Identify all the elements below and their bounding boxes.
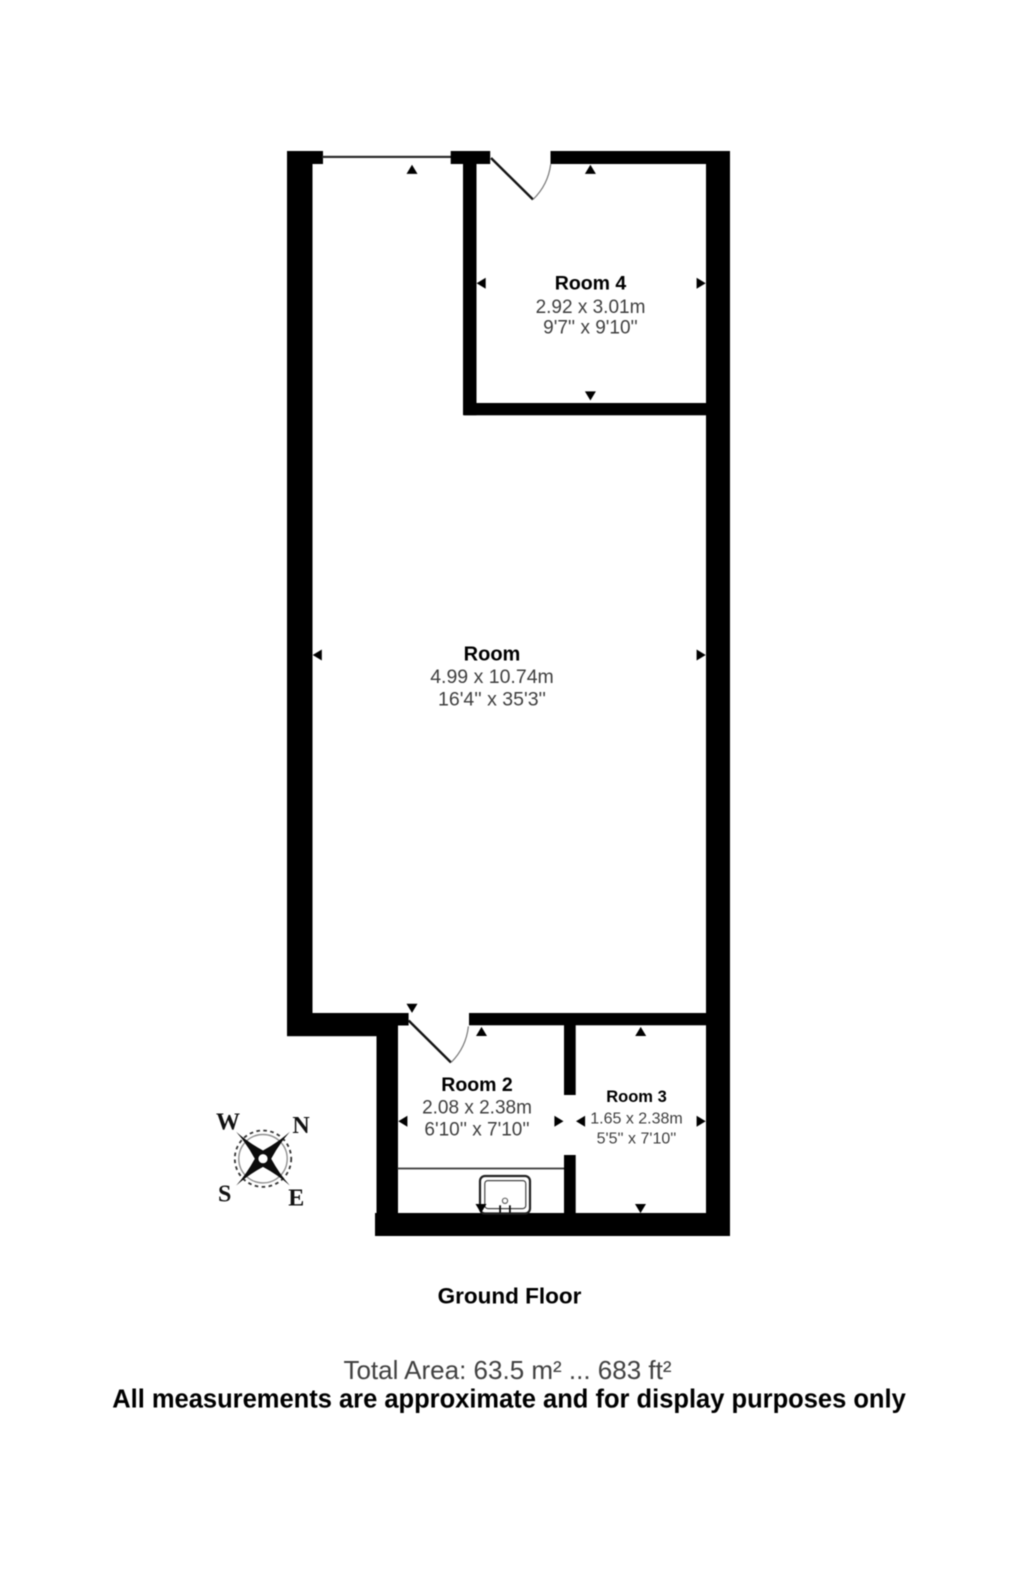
svg-text:Room 4: Room 4 (555, 273, 627, 295)
svg-text:Room: Room (464, 643, 521, 665)
svg-text:6'10'' x 7'10'': 6'10'' x 7'10'' (424, 1120, 529, 1141)
svg-text:E: E (288, 1185, 304, 1211)
svg-text:1.65 x 2.38m: 1.65 x 2.38m (590, 1111, 683, 1128)
svg-text:W: W (216, 1110, 240, 1136)
svg-text:Room 3: Room 3 (606, 1088, 667, 1106)
svg-text:S: S (218, 1181, 231, 1207)
svg-text:16'4'' x 35'3'': 16'4'' x 35'3'' (438, 688, 546, 710)
svg-text:N: N (292, 1113, 310, 1139)
svg-text:All measurements are approxima: All measurements are approximate and for… (112, 1386, 906, 1414)
svg-text:2.92 x 3.01m: 2.92 x 3.01m (536, 297, 646, 318)
svg-text:2.08 x 2.38m: 2.08 x 2.38m (422, 1098, 532, 1119)
svg-text:Total Area: 63.5 m² ... 683 ft: Total Area: 63.5 m² ... 683 ft² (343, 1355, 671, 1385)
svg-text:5'5'' x 7'10'': 5'5'' x 7'10'' (597, 1131, 677, 1148)
svg-text:Ground Floor: Ground Floor (438, 1283, 582, 1308)
svg-text:9'7'' x 9'10'': 9'7'' x 9'10'' (543, 318, 638, 339)
svg-text:Room 2: Room 2 (441, 1074, 513, 1096)
svg-text:4.99 x 10.74m: 4.99 x 10.74m (430, 666, 554, 688)
